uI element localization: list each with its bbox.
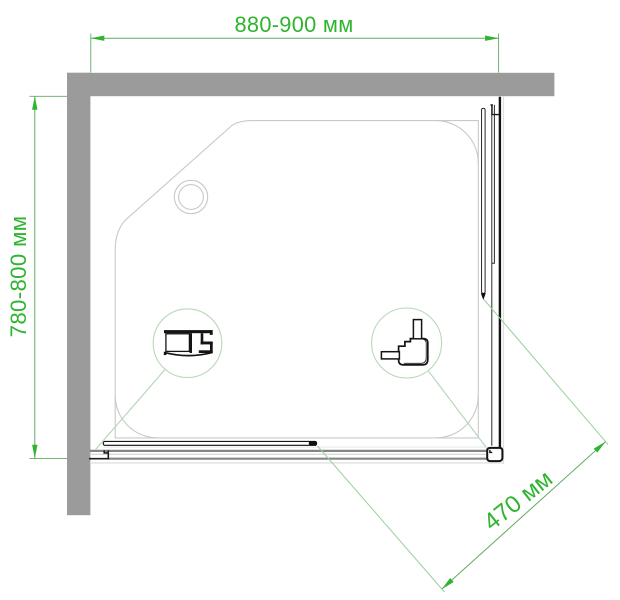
svg-text:880-900 мм: 880-900 мм (234, 12, 353, 37)
svg-text:780-800 мм: 780-800 мм (6, 216, 31, 338)
